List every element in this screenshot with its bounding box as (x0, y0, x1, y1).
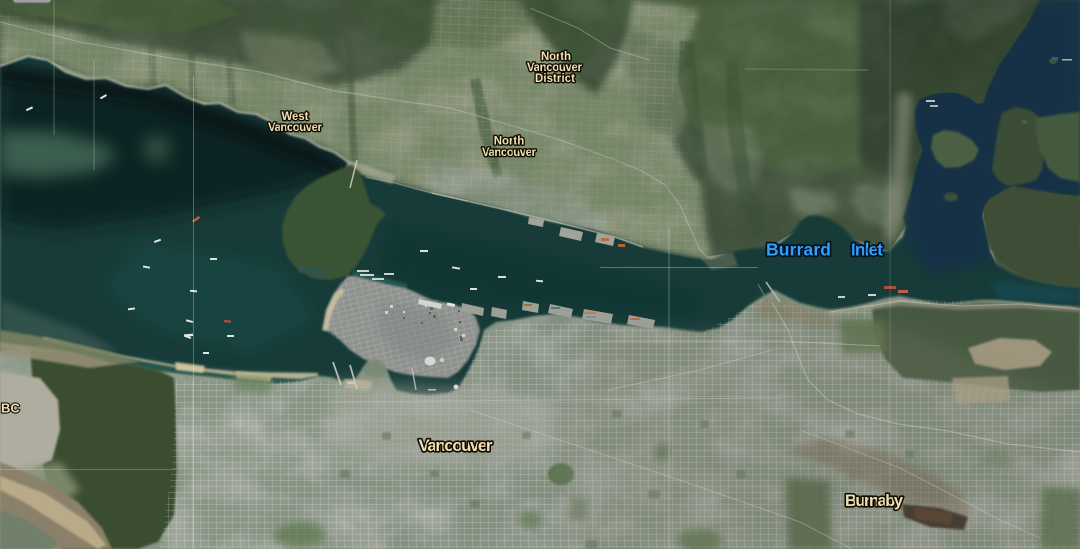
svg-text:Burnaby: Burnaby (845, 492, 904, 510)
svg-text:Inlet: Inlet (851, 240, 883, 260)
svg-text:Vancouver: Vancouver (482, 147, 537, 159)
svg-text:District: District (535, 73, 575, 85)
svg-text:Vancouver: Vancouver (419, 436, 493, 455)
svg-text:BC: BC (1, 401, 20, 416)
svg-text:West: West (282, 111, 309, 123)
svg-text:Vancouver: Vancouver (268, 122, 323, 134)
svg-text:Burrard: Burrard (766, 240, 831, 260)
svg-text:North: North (494, 136, 525, 148)
svg-text:North: North (541, 51, 571, 63)
